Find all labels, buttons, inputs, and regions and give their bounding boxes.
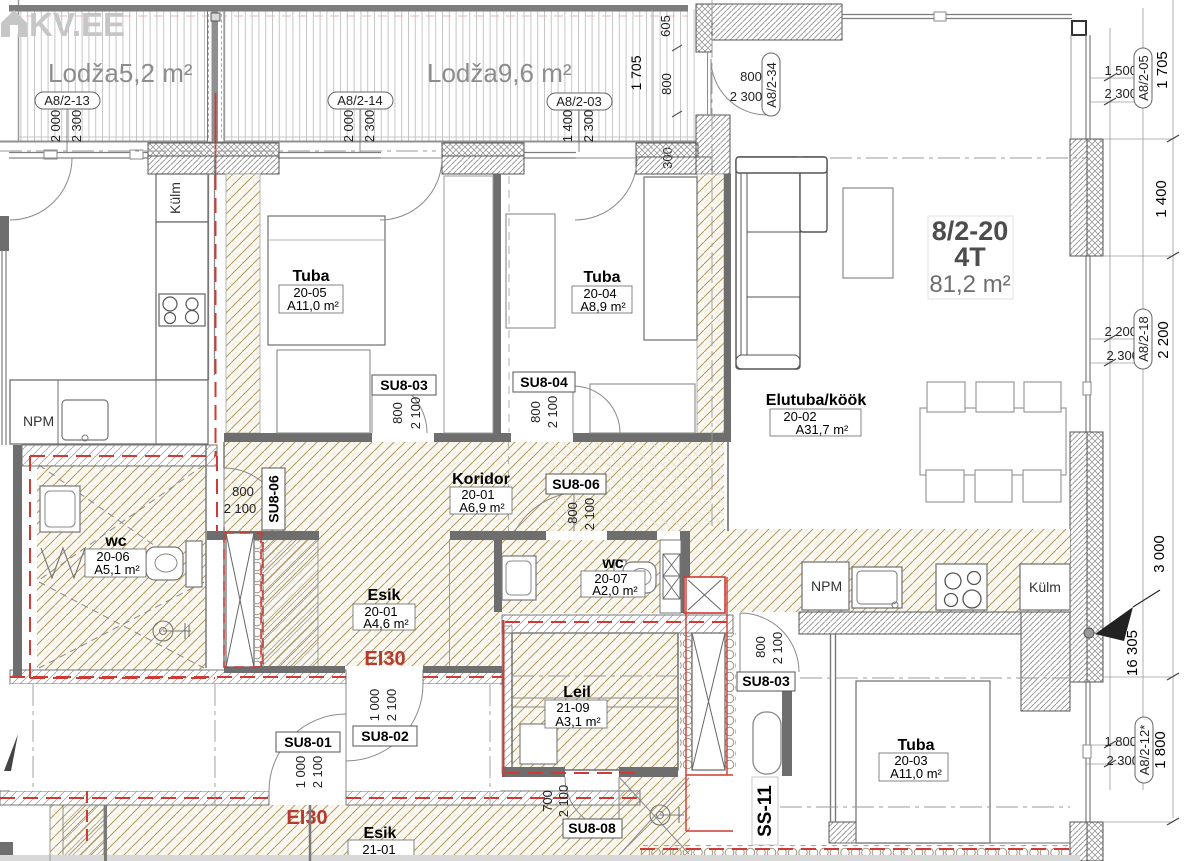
svg-text:A4,6 m²: A4,6 m² [363, 616, 409, 631]
svg-text:A3,1 m²: A3,1 m² [555, 714, 601, 729]
svg-text:2 000: 2 000 [48, 110, 63, 143]
svg-text:4T: 4T [954, 242, 986, 272]
svg-text:1 400: 1 400 [1153, 180, 1170, 218]
svg-text:Koridor: Koridor [452, 471, 510, 488]
svg-text:2 300: 2 300 [1106, 753, 1139, 768]
svg-text:2 300: 2 300 [1104, 86, 1137, 101]
svg-text:A8/2-18: A8/2-18 [1136, 316, 1151, 362]
svg-text:800: 800 [528, 401, 543, 423]
svg-text:800: 800 [659, 73, 674, 95]
svg-text:2 100: 2 100 [582, 498, 597, 531]
svg-text:1 000: 1 000 [367, 689, 382, 722]
svg-text:21-09: 21-09 [556, 700, 589, 715]
svg-text:A8/2-13: A8/2-13 [44, 93, 90, 108]
svg-text:NPM: NPM [23, 413, 54, 429]
svg-text:A8,9 m²: A8,9 m² [580, 299, 626, 314]
svg-text:SU8-06: SU8-06 [552, 476, 600, 492]
svg-text:2 200: 2 200 [1155, 321, 1172, 359]
svg-text:A11,0 m²: A11,0 m² [890, 766, 942, 781]
svg-text:800: 800 [753, 636, 768, 658]
svg-text:Tuba: Tuba [583, 269, 620, 286]
svg-text:A2,0 m²: A2,0 m² [592, 583, 638, 598]
svg-text:SU8-06: SU8-06 [266, 475, 282, 523]
svg-text:2 200: 2 200 [1104, 324, 1137, 339]
svg-text:800: 800 [565, 502, 580, 524]
svg-text:A8/2-14: A8/2-14 [337, 93, 383, 108]
svg-text:SS-11: SS-11 [755, 785, 776, 837]
svg-text:1 800: 1 800 [1152, 731, 1169, 769]
svg-text:800: 800 [390, 402, 405, 424]
svg-text:1 000: 1 000 [293, 756, 308, 789]
svg-text:KV.EE: KV.EE [29, 6, 125, 43]
svg-text:21-01: 21-01 [362, 842, 395, 857]
svg-text:EI30: EI30 [364, 648, 405, 670]
svg-text:1 800: 1 800 [1104, 734, 1137, 749]
svg-text:SU8-03: SU8-03 [742, 673, 790, 689]
svg-text:700: 700 [540, 790, 555, 812]
svg-text:Leil: Leil [563, 684, 591, 701]
svg-text:2 000: 2 000 [341, 110, 356, 143]
svg-text:A8/2-34: A8/2-34 [764, 62, 779, 108]
svg-text:1 400: 1 400 [560, 110, 575, 143]
svg-text:16 305: 16 305 [1124, 630, 1141, 676]
svg-text:SU8-08: SU8-08 [568, 820, 616, 836]
svg-text:A5,1 m²: A5,1 m² [94, 562, 140, 577]
svg-text:A8/2-12*: A8/2-12* [1137, 725, 1152, 776]
svg-text:wc: wc [104, 533, 126, 550]
svg-text:2 100: 2 100 [224, 501, 257, 516]
svg-text:SU8-04: SU8-04 [520, 374, 568, 390]
svg-text:2 300: 2 300 [581, 110, 596, 143]
svg-text:A8/2-05: A8/2-05 [1136, 55, 1151, 101]
svg-text:2 300: 2 300 [730, 89, 763, 104]
svg-text:2 100: 2 100 [770, 632, 785, 665]
svg-text:2 300: 2 300 [362, 110, 377, 143]
svg-text:81,2 m²: 81,2 m² [929, 271, 1010, 298]
svg-text:2 100: 2 100 [556, 785, 571, 818]
svg-text:A8/2-03: A8/2-03 [556, 94, 602, 109]
svg-text:NPM: NPM [811, 578, 842, 594]
svg-text:SU8-03: SU8-03 [380, 377, 428, 393]
svg-text:2 100: 2 100 [310, 756, 325, 789]
svg-text:SU8-02: SU8-02 [361, 728, 409, 744]
svg-text:Elutuba/köök: Elutuba/köök [766, 392, 867, 409]
svg-text:1 705: 1 705 [628, 55, 644, 90]
svg-text:800: 800 [232, 484, 254, 499]
svg-text:2 100: 2 100 [545, 396, 560, 429]
svg-text:Esik: Esik [364, 825, 397, 842]
svg-text:3 000: 3 000 [1151, 535, 1168, 573]
svg-text:SU8-01: SU8-01 [284, 734, 332, 750]
svg-text:Esik: Esik [368, 587, 401, 604]
svg-text:Tuba: Tuba [897, 737, 934, 754]
svg-text:wc: wc [601, 555, 623, 572]
svg-text:A31,7 m²: A31,7 m² [796, 422, 849, 437]
svg-text:Lodža5,2 m²: Lodža5,2 m² [48, 58, 193, 88]
svg-text:Külm: Külm [167, 182, 183, 214]
svg-text:1 500: 1 500 [1104, 63, 1137, 78]
svg-text:800: 800 [740, 69, 762, 84]
svg-text:A11,0 m²: A11,0 m² [287, 298, 339, 313]
svg-text:605: 605 [658, 15, 673, 37]
svg-text:2 300: 2 300 [69, 110, 84, 143]
svg-text:Külm: Külm [1029, 579, 1061, 595]
svg-text:2 100: 2 100 [384, 689, 399, 722]
svg-text:2 100: 2 100 [408, 397, 423, 430]
svg-text:1 705: 1 705 [1154, 51, 1171, 89]
svg-text:Tuba: Tuba [292, 268, 329, 285]
svg-text:EI30: EI30 [286, 807, 327, 829]
svg-text:Lodža9,6 m²: Lodža9,6 m² [427, 58, 572, 88]
svg-text:A6,9 m²: A6,9 m² [459, 500, 505, 515]
